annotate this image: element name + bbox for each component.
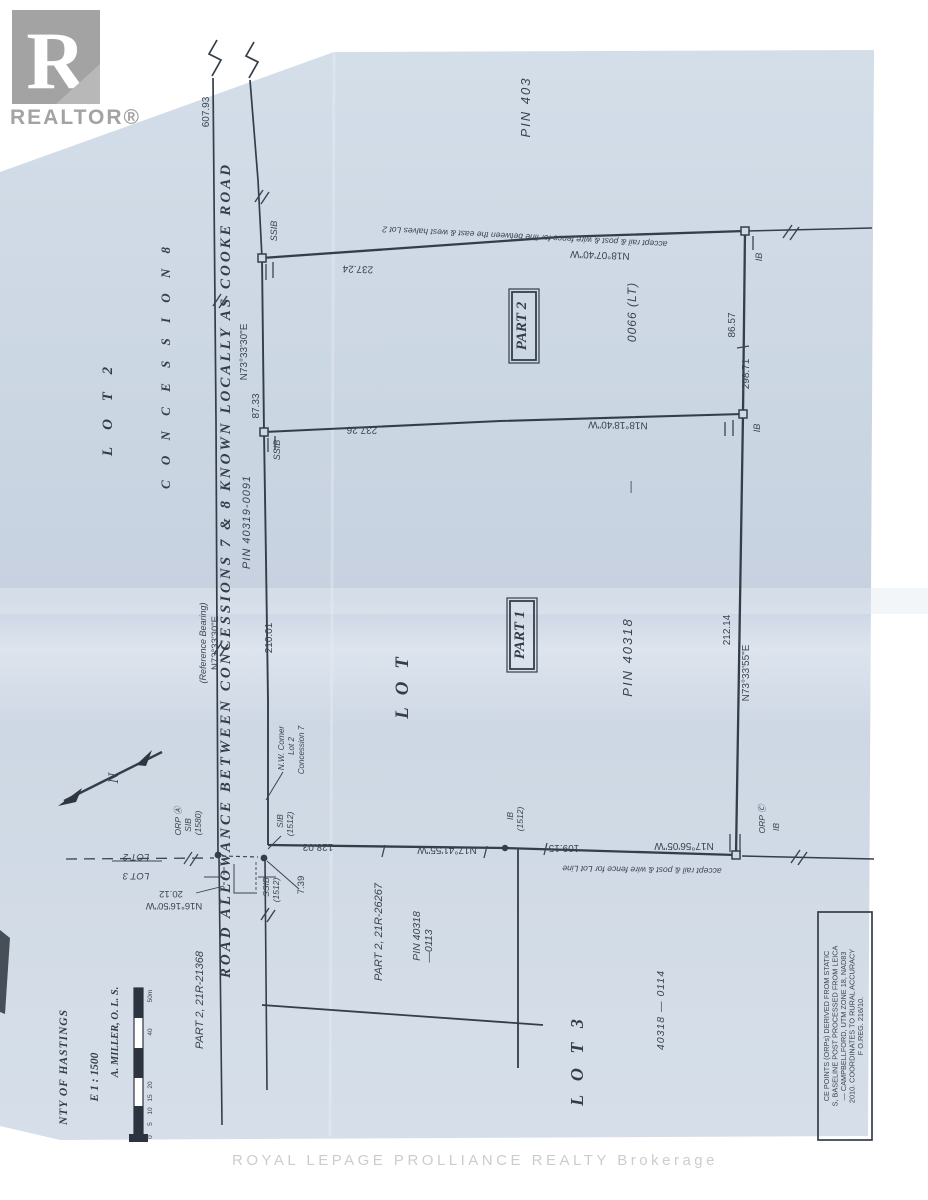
orp-a-label: ORP Ⓐ — [173, 805, 183, 835]
ssib-label-north: SSIB — [269, 221, 279, 242]
pin-dash: — — [623, 481, 637, 493]
pin-40318-0113-label-b: —0113 — [423, 929, 435, 963]
ssib-label-sw: SSIB — [261, 877, 271, 897]
orp-a-sib-label: SIB — [183, 818, 193, 832]
road-pin-label: PIN 40319-0091 — [241, 475, 253, 569]
ib-label-ne: IB — [754, 253, 764, 262]
dim-212-14: 212.14 — [722, 614, 733, 645]
pin-40318-0114-label: 40318 — 0114 — [655, 970, 667, 1050]
dim-237-24: 237.24 — [342, 262, 373, 274]
realtor-wordmark: REALTOR® — [10, 106, 141, 129]
dim-210-01: 210.01 — [264, 622, 275, 653]
bearing-n181840w: N18°18'40"W — [588, 418, 648, 430]
road-seg-bearing: N73°33'30"E — [239, 323, 250, 380]
part1-label: PART 1 — [512, 611, 528, 659]
ssib-monument-north — [258, 254, 266, 262]
dim-237-26: 237.26 — [346, 424, 377, 436]
dim-607-93: 607.93 — [201, 96, 212, 127]
survey-plan-svg: R REALTOR® — [0, 0, 928, 1200]
pin-0066-lt-label: 0066 (LT) — [625, 282, 639, 342]
bearing-n733355e: N73°33'55"E — [741, 644, 752, 701]
lot-3-big-label: L O T 3 — [567, 1014, 587, 1107]
dim-7-39: 7.39 — [296, 876, 307, 895]
ib-label-east: IB — [752, 424, 762, 433]
bearing-n175605w: N17°56'05"W — [654, 840, 714, 851]
orp-c-ib-label: IB — [771, 823, 781, 831]
nw-corner-note-1: N.W. Corner — [277, 726, 286, 770]
reference-bearing-value: N73°33'30"E — [210, 616, 221, 670]
dim-86-57: 86.57 — [727, 312, 738, 337]
reference-bearing-note: (Reference Bearing) — [198, 602, 208, 683]
concession-8-column-label: C O N C E S S I O N 8 — [158, 241, 173, 489]
part2-label: PART 2 — [514, 301, 530, 350]
ib-monument-se — [732, 851, 740, 859]
sib-monument-dot — [261, 855, 268, 862]
road-left-break-top — [209, 40, 221, 76]
bearing-n174155w: N17°41'55"W — [417, 844, 477, 855]
ib-monument-south-mid-dot — [502, 845, 508, 851]
scale-tick-10: 10 — [147, 1107, 154, 1115]
dim-20-12: 20.12 — [159, 888, 183, 899]
ib-monument-east — [739, 410, 747, 418]
scale-label: E 1 : 1500 — [89, 1052, 101, 1102]
sib-1512-label-nw: (1512) — [285, 812, 295, 837]
nw-corner-note-2: Lot 2 — [287, 737, 296, 755]
ib-1512-label-south-mid: (1512) — [515, 807, 525, 832]
part2-21r21368-label: PART 2, 21R-21368 — [194, 950, 206, 1049]
nw-corner-note-3: Concession 7 — [297, 725, 306, 774]
scale-tick-50m: 50m — [147, 990, 154, 1003]
ssib-monument-middle — [260, 428, 268, 436]
scale-tick-15: 15 — [147, 1094, 154, 1102]
orp-c-label: ORP Ⓒ — [757, 803, 767, 833]
ib-monument-ne — [741, 227, 749, 235]
dim-298-71: 298.71 — [741, 358, 752, 389]
notes-line-5: F O.REG. 216/10. — [856, 997, 865, 1055]
ssib-label-middle: SSIB — [272, 440, 282, 461]
realtor-logo: R REALTOR® — [10, 10, 141, 129]
scale-tick-20: 20 — [147, 1081, 154, 1089]
lot-2-column-label: L O T 2 — [100, 360, 116, 457]
pin-40318-label: PIN 40318 — [620, 617, 635, 696]
sib-label-nw: SIB — [275, 814, 285, 828]
paper-fold-crease — [0, 588, 928, 614]
lot-2-small-label: LOT 2 — [122, 851, 149, 862]
road-right-break-top — [246, 42, 258, 78]
part2-21r26267-label: PART 2, 21R-26267 — [373, 882, 385, 981]
dim-109-15: 109.15 — [548, 842, 579, 853]
county-label: NTY OF HASTINGS — [58, 1009, 70, 1126]
dim-128-03: 128.03 — [302, 841, 333, 852]
paper-sheet — [0, 50, 928, 1140]
orp-a-1580-label: (1580) — [193, 811, 203, 836]
road-allowance-name: ROAD ALLOWANCE BETWEEN CONCESSIONS 7 & 8… — [218, 162, 234, 979]
north-arrow-label: N — [106, 771, 122, 784]
bearing-n161650w: N16°16'50"W — [146, 900, 203, 911]
scale-tick-0: 0 — [147, 1135, 154, 1139]
surveyor-label: A. MILLER, O. L. S. — [110, 987, 121, 1079]
ssib-1512-label-sw: (1512) — [271, 878, 281, 903]
bearing-n180740w: N18°07'40"W — [569, 248, 629, 261]
dim-87-33: 87.33 — [251, 393, 262, 418]
brokerage-watermark: ROYAL LEPAGE PROLLIANCE REALTY Brokerage — [232, 1152, 718, 1169]
lot-3-small-label: LOT 3 — [122, 870, 149, 881]
pin-40318-0113-label-a: PIN 40318 — [411, 911, 423, 961]
scale-tick-5: 5 — [147, 1122, 154, 1126]
ib-label-south-mid: IB — [505, 812, 515, 820]
scale-tick-40: 40 — [147, 1028, 154, 1036]
pin-403-label: PIN 403 — [518, 77, 533, 138]
lot-big-label: L O T — [392, 653, 413, 720]
scanned-survey-plan-page: R REALTOR® — [0, 0, 928, 1200]
